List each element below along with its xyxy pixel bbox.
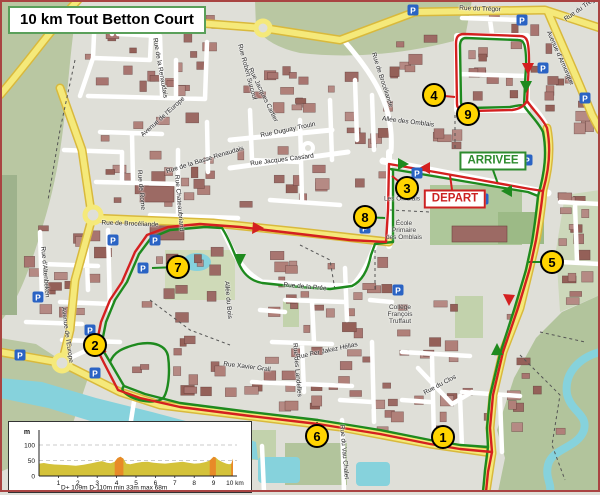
- poi-label: École Primaire des Omblais: [386, 221, 422, 241]
- waypoint-number: 2: [91, 338, 98, 353]
- y-tick-label: 0: [31, 474, 35, 481]
- street-label: Rue de la Renaudais: [151, 37, 168, 98]
- street-label: Rue de Rome: [136, 170, 146, 211]
- waypoint-marker: 5: [540, 250, 564, 274]
- x-tick-label: 8: [192, 480, 196, 487]
- street-label: Avenue de l'Europe: [60, 307, 75, 364]
- street-label: Allée du Bois: [223, 281, 233, 319]
- parking-icon: P: [150, 235, 161, 246]
- parking-icon: P: [108, 235, 119, 246]
- waypoint-number: 8: [361, 210, 368, 225]
- parking-icon: P: [408, 5, 419, 16]
- steep-segment: [231, 459, 233, 476]
- street-label: Rue de la Basse Renaudais: [165, 145, 244, 175]
- x-end-label: 10 km: [226, 480, 244, 487]
- x-tick-label: 9: [212, 480, 216, 487]
- parking-icon: P: [15, 350, 26, 361]
- steep-segment: [210, 457, 216, 476]
- waypoint-marker: 1: [431, 425, 455, 449]
- map-overlay: Rue du TrégorRue du TrégorAvenue d'Armor…: [0, 0, 600, 492]
- waypoint-number: 9: [464, 107, 471, 122]
- street-label: Rue Xavier Grall: [223, 361, 271, 374]
- street-label: Avenue de l'Europe: [140, 96, 187, 139]
- street-label: Rue du Clos: [423, 374, 458, 397]
- parking-icon: P: [538, 63, 549, 74]
- street-label: Rue Per Jakez Hélias: [296, 341, 359, 361]
- street-label: Rue Jacques Cassard: [250, 153, 314, 168]
- y-tick-label: 100: [24, 443, 35, 450]
- poi-label: Collège François Truffaut: [388, 305, 413, 325]
- street-label: Rue du Vau Chalet: [338, 425, 350, 480]
- street-label: Rue de Brocéliande: [101, 220, 158, 229]
- street-label: Rue du Trégor: [459, 5, 501, 13]
- street-label: Rue Chateaubriand: [173, 175, 185, 232]
- waypoint-marker: 8: [353, 205, 377, 229]
- parking-icon: P: [138, 263, 149, 274]
- waypoint-marker: 6: [305, 424, 329, 448]
- steep-segment: [115, 457, 124, 476]
- depart-label: DEPART: [424, 190, 486, 209]
- y-axis-unit: m: [24, 429, 30, 436]
- waypoint-number: 7: [174, 260, 181, 275]
- x-tick-label: 1: [57, 480, 61, 487]
- waypoint-marker: 9: [456, 102, 480, 126]
- street-label: Rue de Brocéliande: [370, 52, 394, 108]
- elevation-profile-panel: m05010012345678910 kmD+ 109m D-110m min …: [8, 421, 252, 493]
- waypoint-number: 3: [403, 181, 410, 196]
- y-tick-label: 50: [28, 458, 36, 465]
- parking-icon: P: [393, 285, 404, 296]
- parking-icon: P: [33, 292, 44, 303]
- x-tick-label: 7: [173, 480, 177, 487]
- waypoint-number: 5: [548, 255, 555, 270]
- street-label: Allée des Omblais: [382, 115, 435, 128]
- waypoint-marker: 3: [395, 176, 419, 200]
- parking-icon: P: [580, 93, 591, 104]
- street-label: Rue d'Altenbeken: [39, 246, 50, 298]
- map-title: 10 km Tout Betton Court: [8, 6, 206, 34]
- arrivee-label: ARRIVEE: [459, 152, 526, 171]
- waypoint-marker: 4: [422, 83, 446, 107]
- parking-icon: P: [90, 368, 101, 379]
- waypoint-number: 1: [439, 430, 446, 445]
- waypoint-marker: 7: [166, 255, 190, 279]
- street-label: Rue Duguay Trouin: [260, 121, 316, 139]
- profile-stats: D+ 109m D-110m min 33m max 68m: [61, 485, 167, 491]
- waypoint-marker: 2: [83, 333, 107, 357]
- street-label: Rue des Landelles: [291, 343, 303, 397]
- elevation-profile-chart: m05010012345678910 kmD+ 109m D-110m min …: [9, 422, 249, 490]
- street-label: Avenue d'Armorique: [545, 30, 575, 86]
- street-label: Rue du Trégor: [563, 0, 600, 23]
- waypoint-number: 6: [313, 429, 320, 444]
- street-label: Rue de la Prée: [283, 282, 327, 293]
- parking-icon: P: [517, 15, 528, 26]
- elevation-area: [39, 457, 233, 476]
- waypoint-number: 4: [430, 88, 437, 103]
